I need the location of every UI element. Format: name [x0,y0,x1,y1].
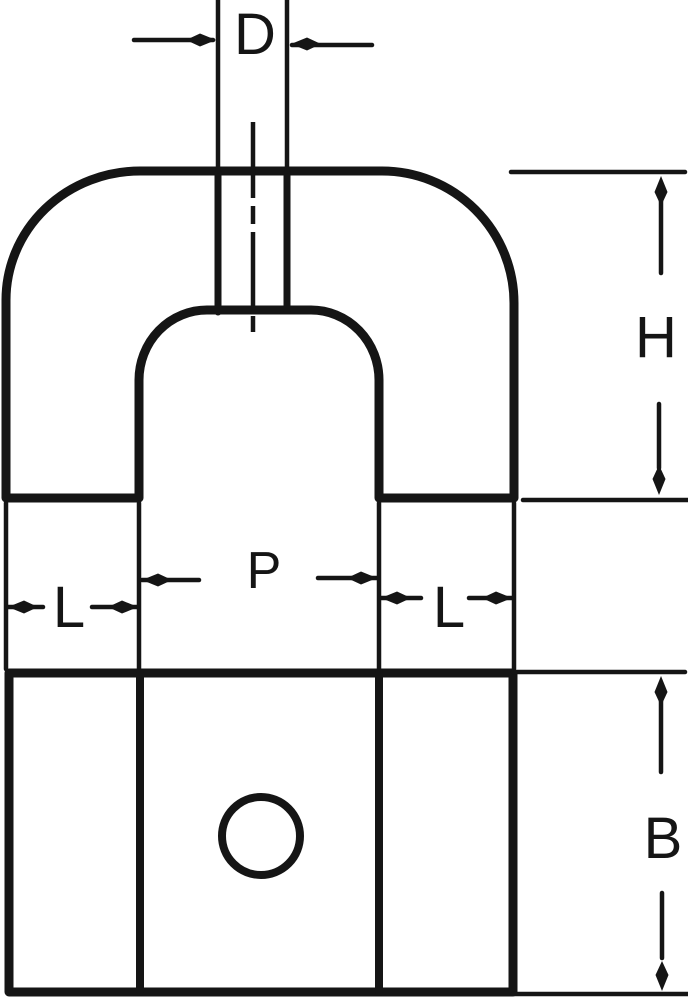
dimension-B: B [513,672,688,994]
magnet-technical-drawing: D H P L [0,0,688,1000]
dim-l-left-inner-arrowhead-icon [108,601,138,614]
dim-h-up-arrowhead-icon [655,176,668,206]
dim-d-right-arrowhead-icon [291,38,321,51]
bottom-view [9,673,513,992]
dim-l-right-outer-arrowhead-icon [482,592,512,605]
dim-l-right-label: L [433,575,465,640]
mounting-hole-circle [222,797,300,875]
dim-l-right-inner-arrowhead-icon [381,592,411,605]
dim-b-down-arrowhead-icon [656,961,669,991]
front-view [6,0,514,498]
dimension-D: D [134,2,372,67]
dimension-H: H [511,172,688,500]
dim-h-label: H [635,305,677,370]
dimension-P: P [142,542,377,600]
drawing-page: D H P L [0,0,688,1000]
dim-p-label: P [247,542,282,600]
dim-p-right-arrowhead-icon [347,572,377,585]
dim-b-up-arrowhead-icon [655,676,668,706]
dim-l-left-outer-arrowhead-icon [8,601,38,614]
magnet-body-outline [6,171,514,498]
dim-d-left-arrowhead-icon [186,34,216,47]
dim-d-label: D [234,2,276,67]
dimension-L-right: L [380,575,512,640]
dim-p-left-arrowhead-icon [142,574,172,587]
dim-l-left-label: L [53,575,85,640]
bottom-view-outline [9,673,513,992]
dim-h-down-arrowhead-icon [653,465,666,495]
dimension-L-left: L [7,575,138,640]
dim-b-label: B [644,806,683,871]
